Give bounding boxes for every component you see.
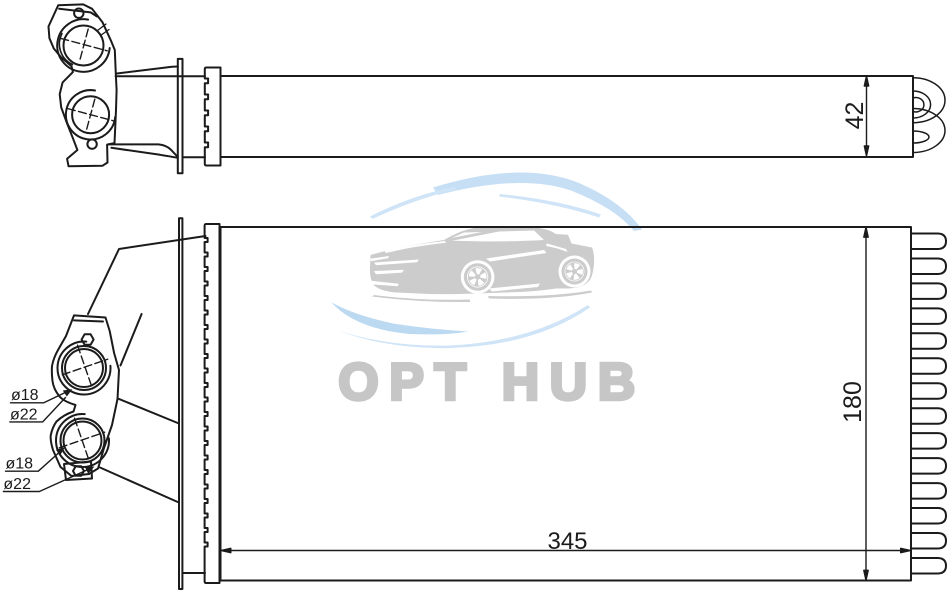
svg-text:ø18: ø18 bbox=[11, 387, 39, 404]
svg-text:ø18: ø18 bbox=[6, 456, 34, 473]
svg-text:180: 180 bbox=[839, 381, 867, 423]
svg-text:345: 345 bbox=[547, 528, 587, 555]
svg-text:42: 42 bbox=[841, 102, 869, 130]
svg-text:ø22: ø22 bbox=[3, 476, 31, 493]
svg-text:OPT HUB: OPT HUB bbox=[338, 354, 646, 412]
svg-text:ø22: ø22 bbox=[10, 407, 38, 424]
